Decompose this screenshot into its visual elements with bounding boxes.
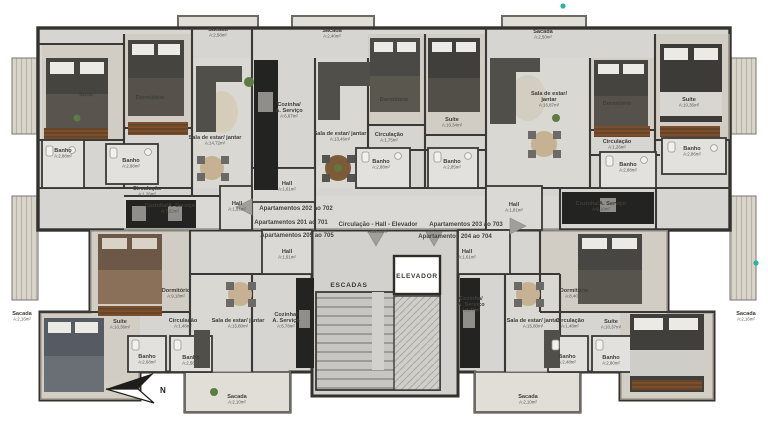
elevator-label: ELEVADOR (396, 273, 438, 280)
room-label: SacadaA:2,58m² (208, 27, 228, 38)
room-label: SacadaA:2,10m² (518, 394, 538, 405)
apartment-range-label: Apartamentos 204 ao 704 (418, 233, 492, 240)
apartment-range-label: Apartamentos 203 ao 703 (429, 221, 503, 228)
balcony (475, 372, 580, 412)
side-balcony (730, 58, 756, 134)
room-label: BanhoA:2,88m² (372, 159, 390, 170)
room-label: BanhoA:2,58m² (182, 355, 200, 366)
apartment-range-label: Apartamentos 201 ao 701 (254, 219, 328, 226)
room-label: SacadaA:2,10m² (227, 394, 247, 405)
room-label: BanhoA:2,68m² (138, 354, 156, 365)
north-label: N (160, 386, 166, 395)
side-balcony (12, 196, 38, 300)
room-label: SacadaA:2,16m² (12, 311, 32, 322)
apartment-range-label: Apartamentos 205 ao 705 (260, 232, 334, 239)
room-label: SacadaA:2,16m² (736, 311, 756, 322)
corridor-area: A:32,44m² (368, 229, 389, 234)
room-label: BanhoA:2,88m² (122, 158, 140, 169)
room-label: SacadaA:2,50m² (533, 29, 553, 40)
room-label: BanhoA:2,48m² (558, 354, 576, 365)
side-balcony (12, 58, 38, 134)
apartment-range-label: Apartamentos 202 ao 702 (259, 205, 333, 212)
room-label: BanhoA:2,88m² (619, 162, 637, 173)
corridor-title: Circulação - Hall - Elevador (339, 221, 419, 228)
room-label: SacadaA:2,40m² (322, 28, 342, 39)
stairs-label: ESCADAS (330, 282, 367, 289)
balcony (185, 372, 290, 412)
elevator-shaft (394, 296, 440, 390)
room-label: BanhoA:2,80m² (602, 355, 620, 366)
room-label: BanhoA:2,86m² (683, 146, 701, 157)
floor-plan-page: N ESCADAS ELEVADOR Circulação - Hall - E… (0, 0, 768, 432)
side-balcony (730, 196, 756, 300)
floor-plan: N ESCADAS ELEVADOR Circulação - Hall - E… (0, 0, 768, 432)
room-label: BanhoA:2,88m² (54, 148, 72, 159)
room-label: BanhoA:2,85m² (443, 159, 461, 170)
